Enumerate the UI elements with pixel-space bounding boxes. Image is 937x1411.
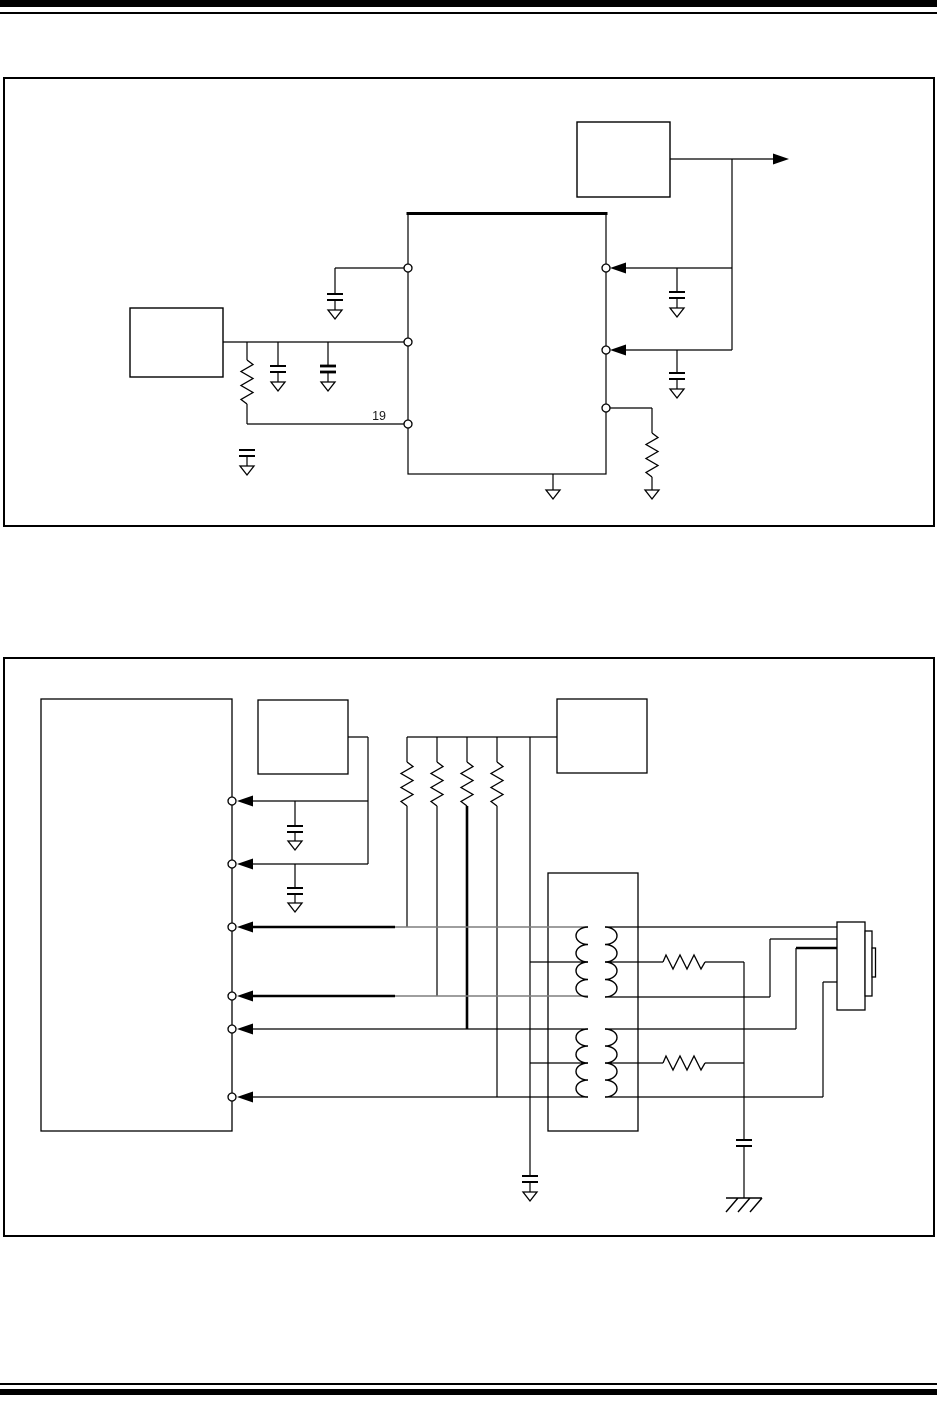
- ic-right-pin: [602, 346, 610, 354]
- signal-arrow: [610, 263, 626, 274]
- chassis-ground-symbol: [726, 1198, 762, 1212]
- signal-arrow: [237, 859, 253, 870]
- schematic-canvas: 19: [0, 0, 937, 1411]
- ground-symbol: [645, 490, 659, 499]
- ic-left-pin-19: [404, 420, 412, 428]
- transformer-windings: [576, 927, 617, 1097]
- capacitor: [522, 1176, 538, 1182]
- supply-box-left: [258, 700, 348, 774]
- ground-symbol: [288, 841, 302, 850]
- main-ic-box: [408, 213, 606, 474]
- signal-arrow: [237, 922, 253, 933]
- resistor: [646, 433, 658, 477]
- modular-jack-connector: [837, 922, 876, 1010]
- signal-arrow: [237, 1024, 253, 1035]
- ic-right-pin: [602, 404, 610, 412]
- capacitor: [736, 1140, 752, 1146]
- ground-symbol: [523, 1192, 537, 1201]
- capacitor: [669, 292, 685, 298]
- resistor: [241, 360, 253, 404]
- supply-box-right: [557, 699, 647, 773]
- mcu-pin: [228, 860, 236, 868]
- mcu-pin: [228, 1025, 236, 1033]
- figure1-schematic: 19: [4, 78, 934, 526]
- capacitor: [239, 450, 255, 456]
- ic-left-pin: [404, 264, 412, 272]
- transformer-box: [548, 873, 638, 1131]
- clock-output-arrow: [773, 154, 789, 165]
- mcu-pin: [228, 797, 236, 805]
- pin19-label: 19: [372, 409, 386, 423]
- figure2-wiring: [253, 737, 837, 1198]
- resistor: [663, 955, 705, 969]
- mcu-pin: [228, 992, 236, 1000]
- ground-symbol: [271, 382, 285, 391]
- mcu-box: [41, 699, 232, 1131]
- ground-symbol: [670, 389, 684, 398]
- datasheet-page: { "colors": { "ink": "#000000", "paper":…: [0, 0, 937, 1411]
- capacitor: [327, 294, 343, 300]
- signal-arrow: [237, 796, 253, 807]
- ground-symbol: [288, 903, 302, 912]
- ic-left-pin: [404, 338, 412, 346]
- signal-arrow: [237, 1092, 253, 1103]
- resistor: [401, 762, 413, 806]
- figure2-schematic: [4, 658, 934, 1236]
- resistor: [491, 762, 503, 806]
- resistor: [461, 762, 473, 806]
- left-source-box: [130, 308, 223, 377]
- resistor: [663, 1056, 705, 1070]
- capacitor: [270, 366, 286, 372]
- signal-arrow: [610, 345, 626, 356]
- mcu-pin: [228, 923, 236, 931]
- ground-symbol: [321, 382, 335, 391]
- ground-symbol: [240, 466, 254, 475]
- ground-symbol: [546, 490, 560, 499]
- signal-arrow: [237, 991, 253, 1002]
- capacitor-bold: [320, 366, 336, 382]
- ground-symbol: [328, 310, 342, 319]
- capacitor: [669, 373, 685, 379]
- ic-right-pin: [602, 264, 610, 272]
- mcu-pin: [228, 1093, 236, 1101]
- capacitor: [287, 888, 303, 894]
- ground-symbol: [670, 308, 684, 317]
- oscillator-box: [577, 122, 670, 197]
- resistor: [431, 762, 443, 806]
- capacitor: [287, 826, 303, 832]
